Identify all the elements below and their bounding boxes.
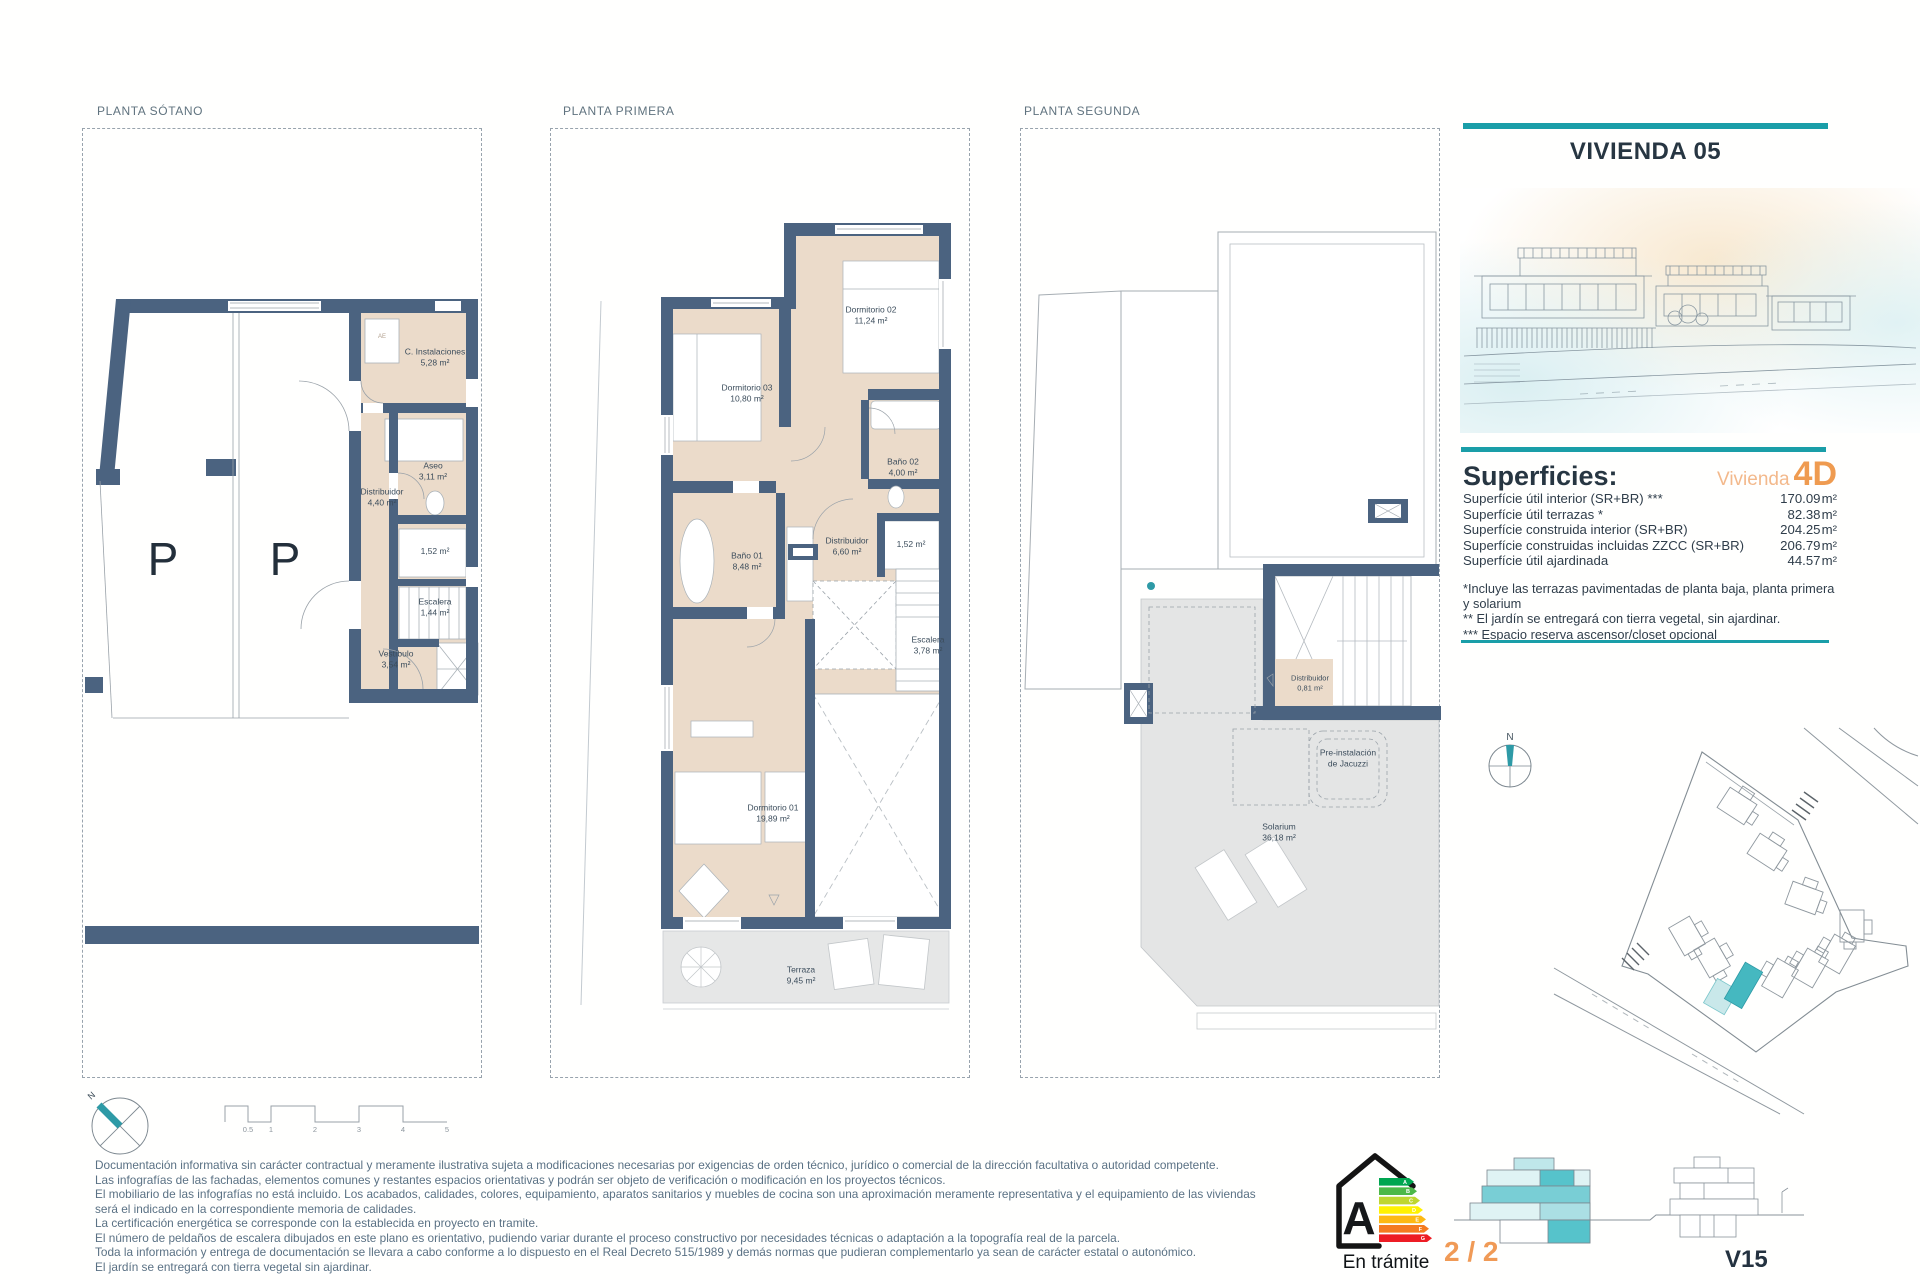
parking-mark-2: P — [270, 532, 301, 586]
unit-title: VIVIENDA 05 — [1463, 138, 1828, 166]
svg-text:A: A — [1403, 1180, 1407, 1186]
vivienda-word: Vivienda — [1717, 469, 1790, 490]
plan-box-sotano: P P AE C. Instalaciones5,28 m² Aseo3,11 … — [82, 128, 482, 1078]
map-houses — [1669, 781, 1872, 998]
room-label-152: 1,52 m² — [897, 539, 926, 550]
plan-box-segunda: Distribuidor0,81 m² Pre-instalaciónde Ja… — [1020, 128, 1440, 1078]
parking-mark-1: P — [148, 532, 179, 586]
svg-text:C: C — [1409, 1199, 1413, 1205]
villa-sketch-rendering — [1460, 188, 1920, 433]
svg-text:5: 5 — [445, 1125, 449, 1134]
plan-segunda-drawing — [1021, 129, 1441, 1079]
room-label-152: 1,52 m² — [421, 546, 450, 557]
north-letter: N — [1506, 732, 1513, 743]
section-highlighted — [1470, 1158, 1590, 1243]
room-label-escalera: Escalera1,44 m² — [418, 597, 451, 618]
svg-text:E: E — [1415, 1217, 1419, 1223]
legal-disclaimer: Documentación informativa sin carácter c… — [95, 1158, 1275, 1274]
plan-title-sotano: PLANTA SÓTANO — [97, 104, 203, 118]
superficies-row: Superfície construidas incluidas ZZCC (S… — [1463, 538, 1837, 554]
toilet-fixture — [426, 491, 444, 515]
superficies-row: Superfície útil ajardinada 44.57 m² — [1463, 553, 1837, 569]
room-label-distribuidor: Distribuidor4,40 m² — [361, 487, 404, 508]
svg-text:B: B — [1406, 1189, 1410, 1195]
energy-certificate-icon: A A B C D E F G — [1333, 1148, 1435, 1252]
toilet-fixture — [888, 486, 904, 508]
superficies-rule — [1461, 447, 1826, 452]
svg-text:2: 2 — [313, 1125, 317, 1134]
superficies-heading-row: Superficies: Vivienda4D — [1463, 455, 1837, 494]
map-crossing-hatches — [1622, 792, 1818, 970]
map-roads — [1554, 728, 1918, 1114]
void-upper — [813, 581, 896, 669]
superficies-row: Superfície útil interior (SR+BR) *** 170… — [1463, 491, 1837, 507]
title-rule — [1463, 123, 1828, 129]
plan-primera-drawing — [551, 129, 971, 1079]
fence — [1476, 328, 1656, 348]
superficies-table: Superfície útil interior (SR+BR) *** 170… — [1463, 491, 1837, 569]
plan-box-primera: Dormitorio 0211,24 m² Dormitorio 0310,80… — [550, 128, 970, 1078]
compass-needle — [99, 1105, 120, 1126]
notes-underline — [1461, 640, 1829, 643]
room-label-dorm01: Dormitorio 0119,89 m² — [747, 803, 798, 824]
room-label-instalaciones: C. Instalaciones5,28 m² — [405, 347, 465, 368]
floorplan-brochure-page: PLANTA SÓTANO — [0, 0, 1920, 1280]
room-label-terraza: Terraza9,45 m² — [787, 965, 816, 986]
energy-status: En trámite — [1330, 1252, 1442, 1274]
compass-needle — [1506, 745, 1514, 766]
energy-grade-letter: A — [1342, 1192, 1375, 1244]
svg-text:0.5: 0.5 — [243, 1125, 253, 1134]
superficies-heading: Superficies: — [1463, 461, 1618, 492]
svg-text:D: D — [1412, 1208, 1416, 1214]
room-label-jacuzzi: Pre-instalaciónde Jacuzzi — [1320, 748, 1376, 769]
room-label-bano02: Baño 024,00 m² — [887, 457, 919, 478]
planter-edge — [1197, 1013, 1436, 1029]
teal-marker-dot — [1147, 582, 1155, 590]
svg-text:4: 4 — [401, 1125, 405, 1134]
svg-text:3: 3 — [357, 1125, 361, 1134]
room-label-dorm03: Dormitorio 0310,80 m² — [721, 383, 772, 404]
svg-text:1: 1 — [269, 1125, 273, 1134]
north-compass-right: N — [1482, 730, 1538, 792]
room-label-escalera: Escalera3,78 m² — [911, 635, 944, 656]
map-highlighted-unit — [1703, 954, 1762, 1020]
unit-type-group: Vivienda4D — [1717, 455, 1837, 494]
building-sections — [1452, 1150, 1812, 1254]
room-label-bano01: Baño 018,48 m² — [731, 551, 763, 572]
vivienda-type: 4D — [1794, 455, 1837, 493]
void-double-height — [813, 694, 944, 917]
sheet-code: V15 — [1725, 1246, 1768, 1274]
room-label-vestibulo: Vestíbulo3,54 m² — [379, 649, 414, 670]
scale-bar: 0.5 1 2 3 4 5 — [205, 1092, 465, 1140]
north-letter: N — [86, 1090, 98, 1102]
room-label-distribuidor2: Distribuidor0,81 m² — [1291, 674, 1329, 693]
room-label-solarium: Solarium36,18 m² — [1262, 822, 1296, 843]
room-label-distribuidor: Distribuidor6,60 m² — [826, 536, 869, 557]
site-location-map — [1552, 726, 1920, 1116]
energy-scale-bars: A B C D E F G — [1379, 1178, 1432, 1242]
closet-mark: AE — [378, 334, 386, 340]
plot-boundary-line — [581, 301, 601, 1005]
plan-title-primera: PLANTA PRIMERA — [563, 104, 675, 118]
north-compass-bottom: N — [78, 1086, 158, 1162]
map-boundary — [1622, 752, 1908, 1052]
scale-ticks: 0.5 1 2 3 4 5 — [243, 1125, 449, 1134]
section-outline — [1670, 1157, 1788, 1237]
plan-title-segunda: PLANTA SEGUNDA — [1024, 104, 1140, 118]
superficies-row: Superfície útil terrazas * 82.38 m² — [1463, 507, 1837, 523]
superficies-notes: *Incluye las terrazas pavimentadas de pl… — [1463, 581, 1841, 642]
room-label-aseo: Aseo3,11 m² — [419, 461, 447, 482]
room-label-dorm02: Dormitorio 0211,24 m² — [845, 305, 896, 326]
superficies-row: Superfície construida interior (SR+BR) 2… — [1463, 522, 1837, 538]
svg-text:G: G — [1421, 1236, 1425, 1242]
